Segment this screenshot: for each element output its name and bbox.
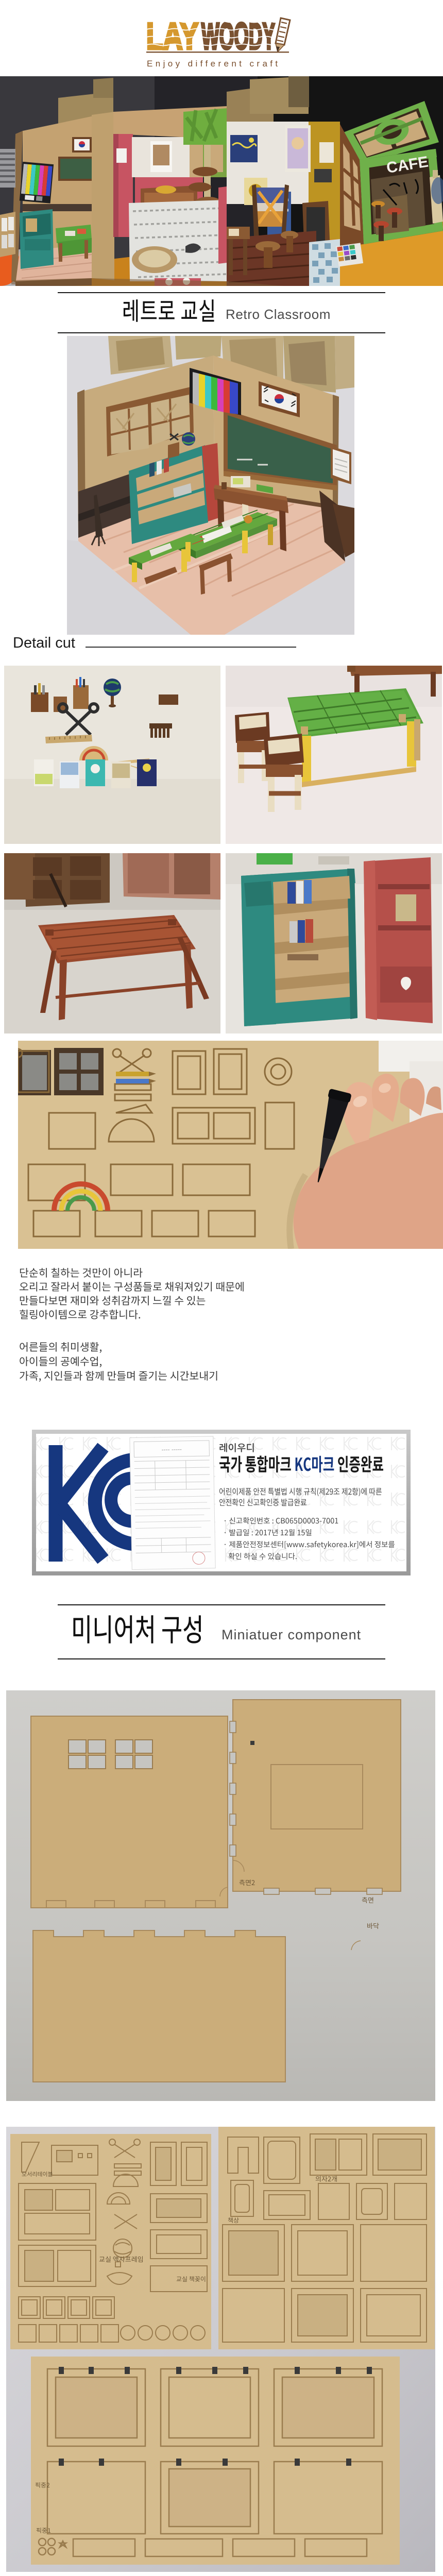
svg-text:---- -----: ---- ----- (161, 1446, 182, 1453)
svg-text:Enjoy different craft: Enjoy different craft (147, 59, 281, 69)
svg-text:Retro Classroom: Retro Classroom (226, 307, 331, 322)
svg-text:Miniatuer component: Miniatuer component (221, 1627, 361, 1642)
